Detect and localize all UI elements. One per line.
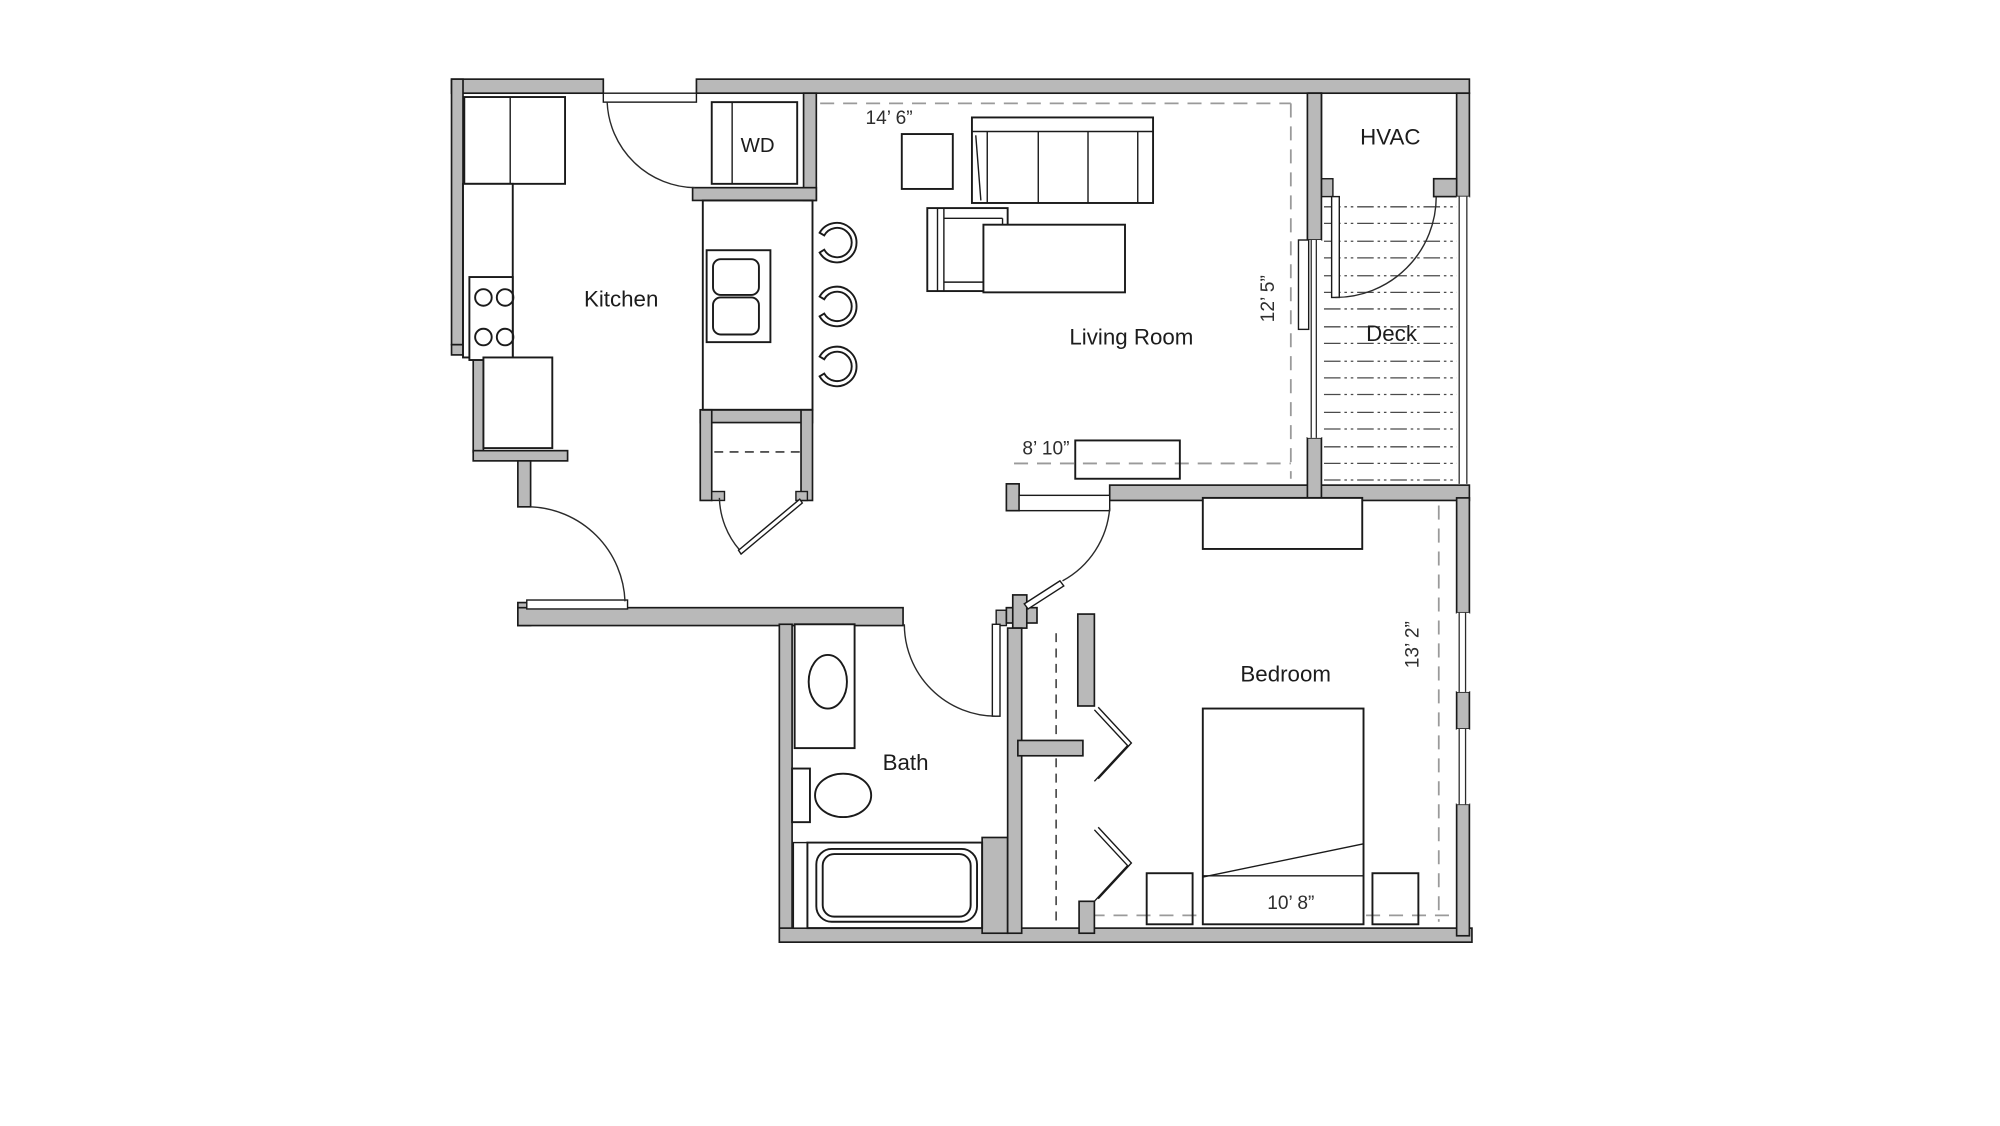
wall-top-main [696,79,1469,93]
sofa [972,117,1153,203]
entry-door [603,93,696,187]
closet-bifold-doors [1094,707,1131,901]
toilet [792,769,871,823]
bedroom-door [1019,495,1110,609]
dim-hall-span: 8’ 10” [1022,438,1069,459]
dim-living-width: 14’ 6” [865,108,912,129]
living-room-label: Living Room [1069,325,1193,350]
nightstand-left [1147,873,1193,924]
floor-plan-page: Kitchen Living Room Deck HVAC Bath Bedro… [0,0,2000,1126]
bath-door [904,624,1000,716]
wall-closet-right-stub [1079,901,1094,933]
wall-bath-closet [1008,628,1022,933]
wall-bath-door-jamb [996,610,1006,625]
wall-living-right-upper [1307,93,1321,240]
wall-bedroom-right-2 [1457,692,1470,729]
dim-living-depth: 12’ 5” [1258,275,1279,322]
floor-plan-drawing: Kitchen Living Room Deck HVAC Bath Bedro… [0,0,2000,1126]
bathtub [793,843,982,929]
wall-closet-crossbar [1018,740,1083,755]
coffee-table [983,225,1125,293]
wall-top-left [452,79,604,93]
wall-wd-bottom [693,188,817,201]
wall-hall-stub [518,461,531,507]
bedroom-window-1 [1457,613,1470,692]
wall-closet-right-upper [1078,614,1095,706]
media-console [1075,440,1180,478]
dim-bedroom-width: 10’ 8” [1267,893,1314,914]
hvac-door [1332,197,1437,298]
wall-living-right-lower [1307,438,1321,501]
bedroom-window-2 [1457,729,1470,804]
nightstand-right [1372,873,1418,924]
wall-pantry-right [801,410,812,501]
counter-lower [483,357,552,448]
wall-bedroom-right-3 [1457,804,1470,935]
bedroom-label: Bedroom [1240,662,1331,687]
side-table [902,134,953,189]
wall-hvac-right [1457,93,1470,196]
hall-door [527,507,628,609]
range-cooktop [469,277,513,360]
wall-kitchen-southwest [473,451,567,461]
wall-wd-right [804,93,817,200]
kitchen-label: Kitchen [584,286,658,311]
pantry-door [719,498,802,554]
wall-kitchen-left [452,79,463,345]
refrigerator [464,97,565,184]
wall-divider-cap [1006,484,1019,511]
wall-pantry-top [700,410,812,423]
wall-bottom [779,928,1472,942]
bar-stool [820,287,857,327]
vanity-sink [795,624,855,748]
wall-bedroom-right-1 [1457,498,1470,613]
hvac-label: HVAC [1360,124,1420,149]
deck-label: Deck [1366,321,1418,346]
bedroom-furniture [1147,498,1419,924]
deck-railing [1457,197,1470,484]
wall-bath-left [779,624,792,941]
wall-hvac-jamb-left [1321,179,1332,197]
kitchen-fixtures [463,97,857,448]
wall-pantry-jamb-right [796,492,807,501]
dresser [1203,498,1362,549]
dim-bedroom-depth: 13’ 2” [1402,621,1423,668]
sliding-door [1298,240,1321,438]
kitchen-island [703,200,813,409]
bar-stools [820,223,857,386]
bath-label: Bath [883,750,929,775]
wall-pantry-jamb-left [712,492,725,501]
sliding-door-panel [1298,240,1308,329]
living-room-furniture [902,117,1180,478]
bar-stool [820,347,857,387]
island-sink [707,250,771,342]
wall-hvac-jamb-right [1434,179,1457,197]
wall-kitchen-left-lower [473,355,483,452]
bed [1203,709,1364,925]
wall-tub-pier [982,837,1008,933]
washer-dryer-label: WD [741,135,775,157]
wall-junction-v [1013,595,1027,628]
wall-hall-south [518,608,903,626]
wall-pantry-left [700,410,711,501]
bar-stool [820,223,857,263]
bath-fixtures [792,624,982,928]
